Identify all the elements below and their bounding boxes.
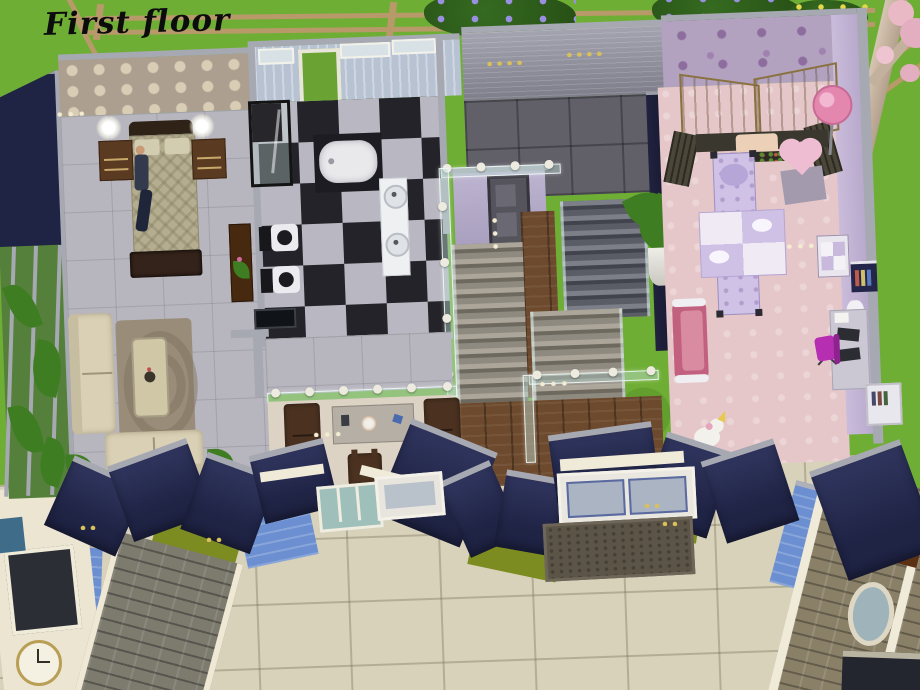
ceiling-light-row [537, 379, 567, 386]
bed-post [710, 151, 717, 158]
nightstand[interactable] [98, 140, 134, 181]
bookshelf[interactable] [850, 260, 877, 292]
sim-torso [134, 155, 148, 191]
loveseat-arm [675, 374, 709, 383]
window-pane [566, 479, 626, 518]
shower-cabin[interactable] [248, 100, 293, 188]
wall-stub [231, 329, 269, 338]
ground-window [0, 517, 26, 554]
eave-light [642, 502, 664, 508]
table-item [392, 414, 403, 424]
bookshelf[interactable] [865, 383, 903, 426]
armchair-ears [371, 449, 377, 457]
eave-light [660, 520, 682, 526]
book-spine [855, 270, 860, 286]
desk-chair[interactable] [813, 332, 842, 369]
exterior-navy-wall [0, 70, 63, 248]
plate-clutter [361, 416, 377, 432]
book-spine [867, 270, 872, 286]
window-mullion [355, 486, 361, 520]
ceiling-light-row [311, 430, 341, 437]
centerpiece [144, 371, 155, 382]
table-item [341, 415, 349, 426]
book-spine [883, 391, 888, 405]
coffee-table[interactable] [131, 337, 170, 418]
window-pane [628, 476, 688, 515]
wall-clock[interactable] [16, 640, 62, 686]
window-mullion [336, 488, 342, 522]
bathroom-window [258, 48, 295, 65]
dresser-drawers [821, 242, 846, 271]
tree-blossom [900, 64, 920, 82]
eave-light [78, 524, 100, 530]
eave-light [204, 536, 226, 542]
bunny-playmat [698, 209, 786, 278]
toilet[interactable] [259, 224, 300, 254]
bathroom-window [298, 48, 342, 108]
sim-head [136, 145, 145, 154]
pillow [164, 138, 190, 155]
door-panel [496, 212, 517, 237]
sitting-table[interactable] [332, 403, 415, 444]
book-spine [877, 391, 882, 405]
drawer-line [104, 168, 128, 171]
bed-post [716, 310, 723, 317]
bedroom-wallpaper [58, 53, 256, 116]
ceiling-light-row [490, 214, 500, 254]
door-panel [495, 184, 516, 207]
sim-legs [135, 189, 153, 232]
game-viewport: First floor [0, 0, 920, 690]
nightstand[interactable] [191, 138, 227, 179]
cushion-split [82, 372, 112, 375]
window-pane [384, 481, 436, 509]
drawer-line [197, 166, 221, 169]
crib-side-wing [663, 131, 699, 187]
bathroom-window [392, 38, 437, 55]
toilet-tank [259, 227, 272, 251]
bathtub[interactable] [313, 132, 383, 193]
foot-bench[interactable] [130, 249, 203, 278]
toilet[interactable] [260, 266, 301, 296]
chair-back [833, 334, 840, 364]
bathroom-window [340, 42, 391, 59]
changing-dresser[interactable] [816, 234, 850, 277]
sink-basin [385, 232, 410, 257]
ground-window [841, 651, 920, 690]
bed-pillow [720, 163, 749, 186]
drawer-line [197, 156, 221, 159]
ground-window [4, 545, 82, 636]
bed-post [749, 150, 756, 157]
book-spine [871, 392, 876, 406]
double-bed[interactable] [129, 120, 199, 282]
clock-hand [38, 661, 50, 663]
cream-sofa[interactable] [68, 313, 117, 435]
sitting-room-upper-floor [265, 332, 453, 395]
loveseat-cushion [680, 310, 704, 371]
sink-basin [383, 184, 408, 209]
dresser[interactable] [229, 223, 254, 302]
loveseat-arm [672, 298, 706, 307]
armchair-ears [351, 449, 357, 457]
ceiling-light-row [54, 110, 86, 117]
bed-post [755, 309, 762, 316]
toilet-tank [260, 269, 273, 293]
dresser-plant [233, 260, 250, 279]
bunny-motif [709, 250, 729, 264]
heart-chair[interactable] [779, 135, 825, 177]
bunny-motif [752, 218, 772, 232]
stairs-left-flight[interactable] [452, 242, 530, 419]
sink-counter[interactable] [379, 177, 411, 276]
pink-loveseat[interactable] [672, 302, 709, 379]
sleeping-sim[interactable] [131, 143, 153, 236]
window-bay [316, 481, 384, 532]
paper [834, 313, 848, 324]
book-spine [861, 270, 866, 286]
drawer-line [104, 158, 128, 161]
window-bay [374, 471, 446, 521]
wall-tv[interactable] [254, 308, 297, 330]
floor-title: First floor [43, 1, 264, 51]
